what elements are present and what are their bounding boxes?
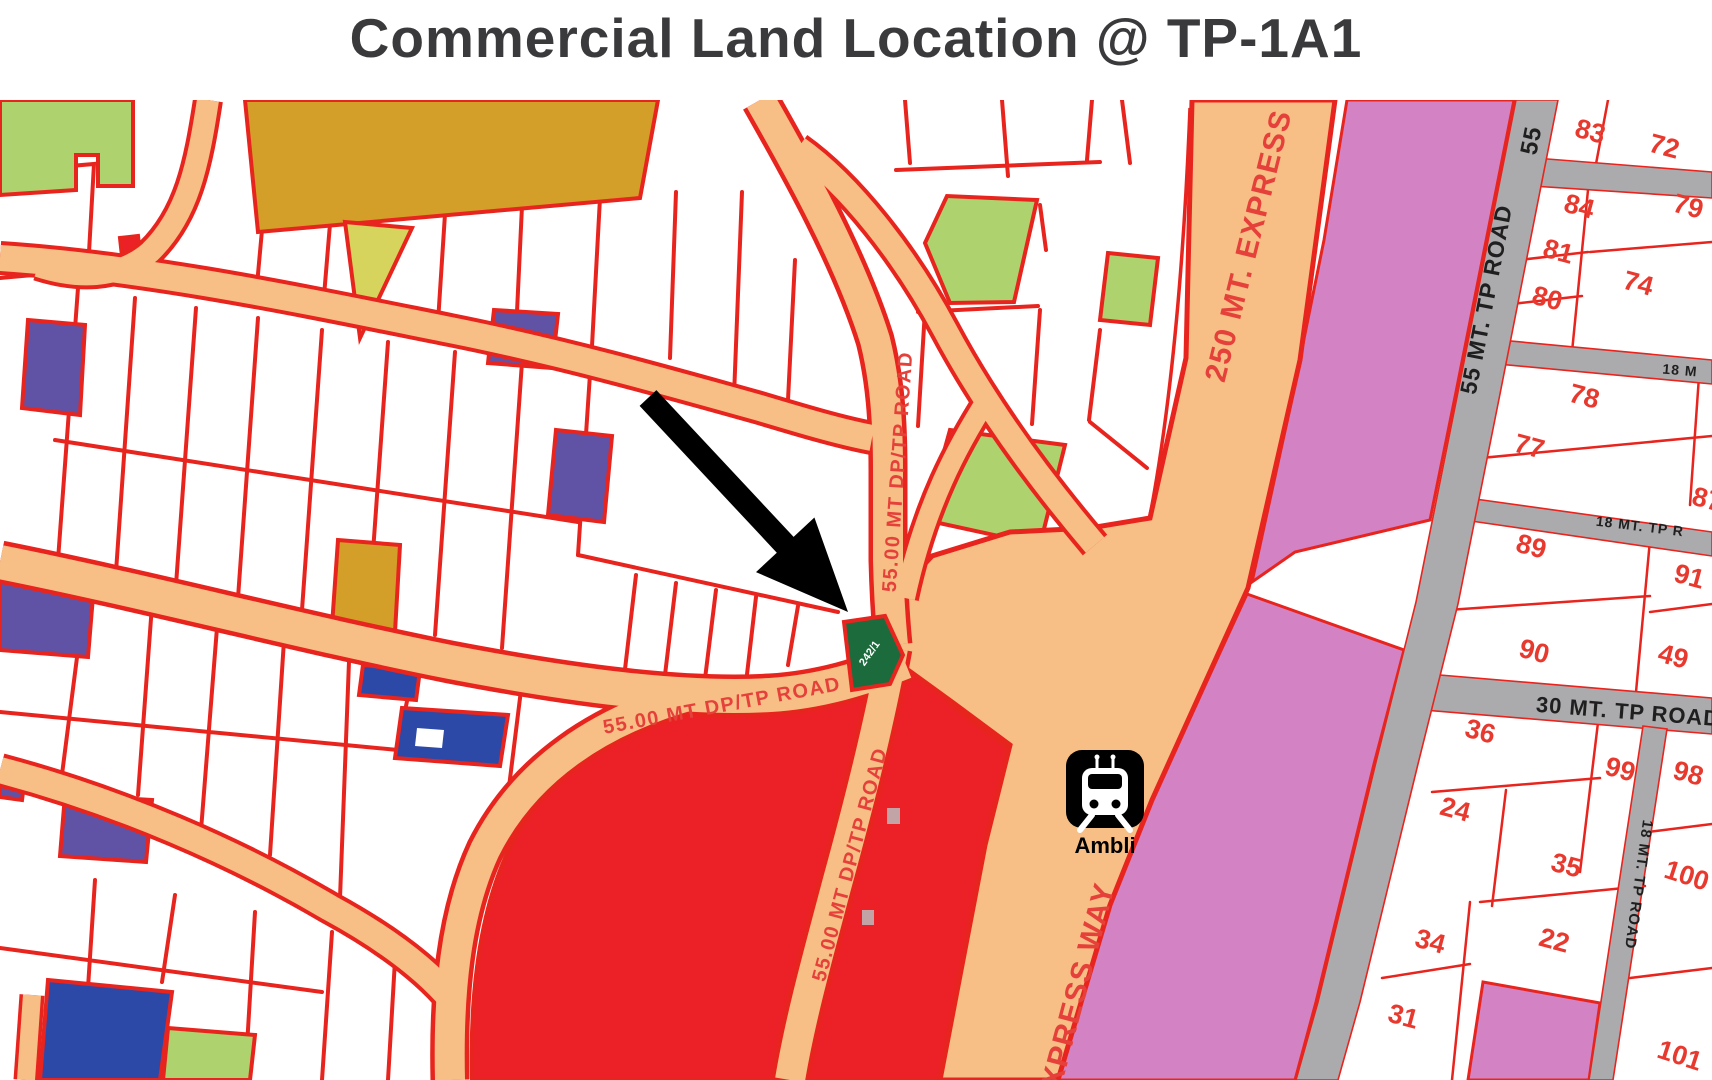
road-marker	[887, 808, 900, 824]
road-label-55-top: 55	[1516, 124, 1548, 157]
purple-plot	[22, 320, 85, 415]
tp-scheme-map: 242/1 Ambli 55.00 MT DP/TP ROAD 55.00 MT…	[0, 100, 1712, 1080]
blue-plot	[40, 980, 172, 1080]
railway-station-icon	[1066, 750, 1144, 830]
blue-plot-inner-white	[415, 728, 444, 748]
green-plot	[163, 1028, 255, 1080]
commercial-land-location-page: { "title": "Commercial Land Location @ T…	[0, 0, 1712, 1080]
blue-plot	[395, 708, 508, 766]
green-plot	[1100, 253, 1158, 325]
green-plot	[0, 100, 133, 195]
purple-plot	[548, 430, 612, 522]
road-marker	[862, 910, 874, 925]
road-label-18-upper: 18 M	[1662, 360, 1698, 379]
road-stub	[26, 995, 32, 1080]
station-label: Ambli	[1074, 833, 1135, 858]
page-title: Commercial Land Location @ TP-1A1	[0, 6, 1712, 70]
